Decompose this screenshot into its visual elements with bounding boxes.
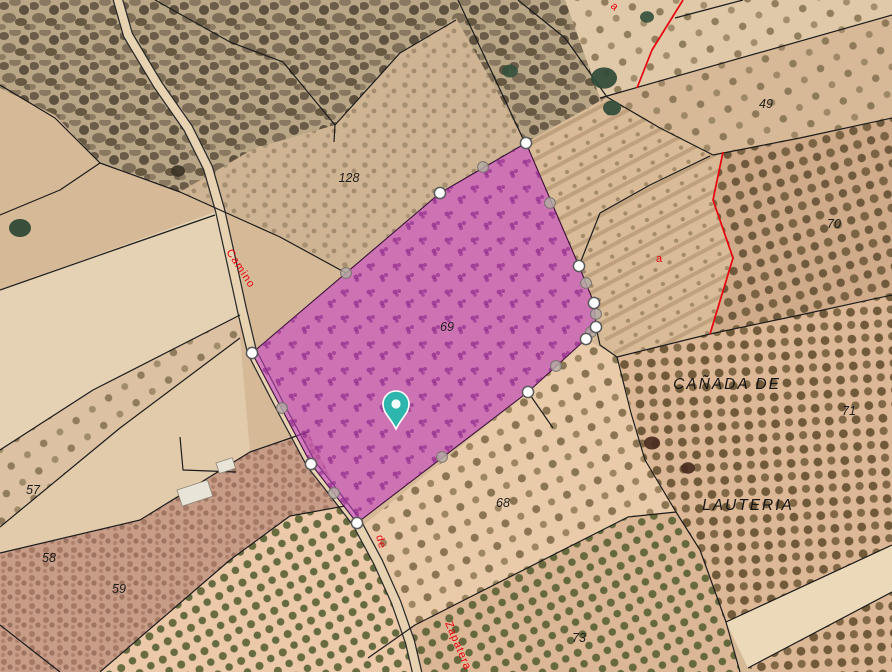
tree-blob-5 [171,165,185,176]
parcel-midpoint-handle-6[interactable] [329,488,340,499]
parcel-vertex-handle-1[interactable] [573,260,584,271]
pin-hole [391,399,400,408]
map-canvas[interactable]: 128497071696857585973CAÑADA DELAUTERIACa… [0,0,892,672]
map-viewport[interactable]: 128497071696857585973CAÑADA DELAUTERIACa… [0,0,892,672]
parcel-midpoint-handle-9[interactable] [478,162,489,173]
tree-blob-4 [9,219,31,237]
parcel-number-label-49: 49 [759,97,773,111]
parcel-vertex-handle-8[interactable] [246,347,257,358]
parcel-vertex-handle-7[interactable] [305,458,316,469]
parcel-vertex-handle-9[interactable] [434,187,445,198]
parcel-midpoint-handle-0[interactable] [545,198,556,209]
parcel-number-label-57: 57 [26,483,41,497]
parcel-number-label-69: 69 [440,320,454,334]
parcel-midpoint-handle-4[interactable] [551,361,562,372]
place-name-label-0: CAÑADA DE [673,376,781,393]
parcel-number-label-70: 70 [827,217,841,231]
parcel-number-label-73: 73 [572,631,586,645]
parcel-vertex-handle-0[interactable] [520,137,531,148]
parcel-midpoint-handle-7[interactable] [277,403,288,414]
parcel-number-label-71: 71 [842,404,856,418]
place-name-label-1: LAUTERIA [702,497,794,514]
parcel-midpoint-handle-5[interactable] [437,452,448,463]
tree-blob-0 [591,67,617,88]
parcel-midpoint-handle-2[interactable] [591,309,602,320]
road-name-label-3: a [656,253,663,265]
parcel-vertex-handle-2[interactable] [588,297,599,308]
tree-blob-6 [644,436,660,449]
parcel-number-label-68: 68 [496,496,510,510]
tree-blob-7 [681,462,695,473]
parcel-vertex-handle-4[interactable] [580,333,591,344]
tree-blob-1 [502,64,518,77]
parcel-number-label-128: 128 [339,171,360,185]
parcel-number-label-58: 58 [42,551,56,565]
parcel-midpoint-handle-1[interactable] [581,278,592,289]
parcel-number-label-59: 59 [112,582,126,596]
parcel-vertex-handle-3[interactable] [590,321,601,332]
parcel-vertex-handle-6[interactable] [351,517,362,528]
tree-blob-2 [603,101,621,116]
tree-blob-3 [640,11,654,22]
parcel-vertex-handle-5[interactable] [522,386,533,397]
parcel-midpoint-handle-8[interactable] [341,268,352,279]
